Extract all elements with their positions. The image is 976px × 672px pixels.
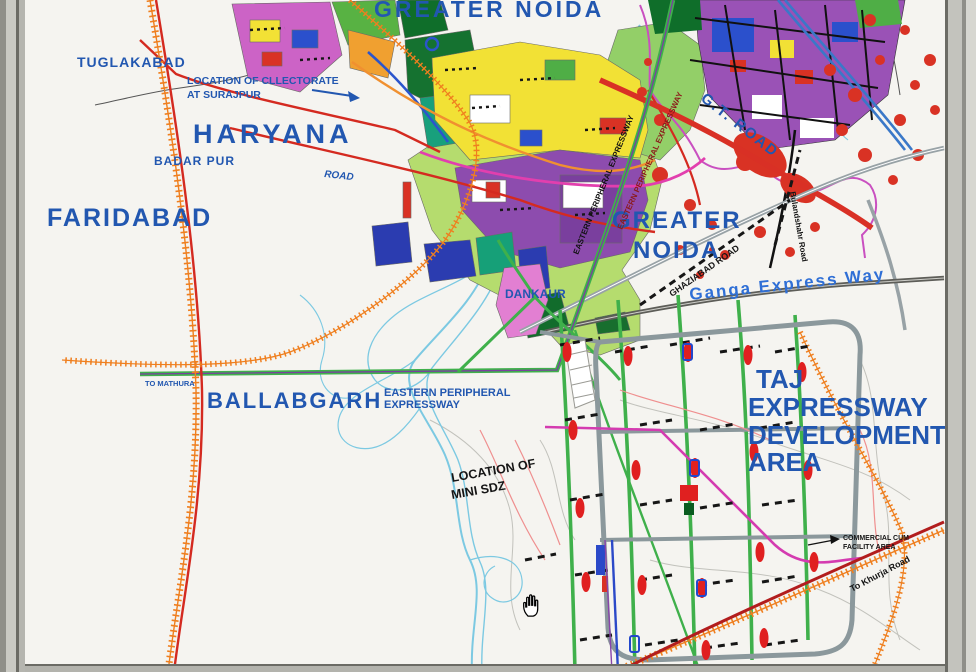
label-taj-2: EXPRESSWAY — [748, 392, 928, 422]
label-to-mathura: TO MATHURA — [145, 379, 195, 388]
label-commercial-1: COMMERCIAL CUM — [843, 535, 909, 542]
label-dankaur: DANKAUR — [505, 287, 566, 301]
label-commercial-2: FACILITY AREA — [843, 544, 896, 551]
label-epe-blue-2: EXPRESSWAY — [384, 399, 461, 411]
label-epe-blue-1: EASTERN PERIPHERAL — [384, 387, 511, 399]
label-faridabad: FARIDABAD — [47, 204, 212, 232]
label-collectorate-2: AT SURAJPUR — [187, 89, 261, 101]
label-taj-4: AREA — [748, 447, 822, 477]
map-title: GREATER NOIDA — [374, 0, 604, 22]
map-canvas[interactable]: GREATER NOIDA TUGLAKABAD LOCATION OF CLL… — [0, 0, 976, 672]
label-haryana: HARYANA — [193, 119, 353, 149]
label-greater-noida-2: NOIDA — [633, 237, 720, 264]
label-badar-pur: BADAR PUR — [154, 154, 235, 168]
label-taj-1: TAJ — [756, 364, 803, 394]
label-ballabgarh: BALLABGARH — [207, 388, 382, 413]
label-taj-3: DEVELOPMENT — [748, 420, 946, 450]
label-tuglakabad: TUGLAKABAD — [77, 54, 186, 70]
label-collectorate-1: LOCATION OF CLLECTORATE — [187, 75, 339, 87]
map-viewer-window: GREATER NOIDA TUGLAKABAD LOCATION OF CLL… — [0, 0, 976, 672]
